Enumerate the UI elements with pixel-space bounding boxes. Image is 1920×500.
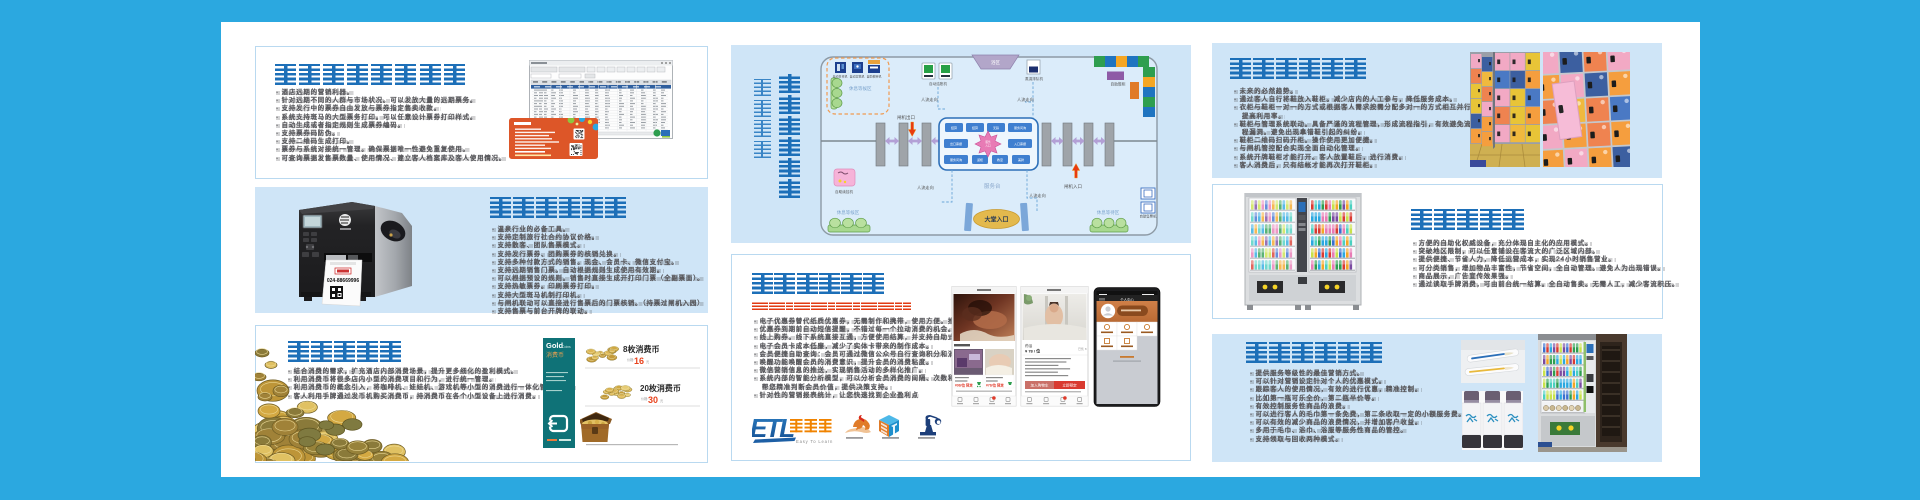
svg-text:闸机出口: 闸机出口	[897, 114, 915, 121]
svg-text:无踪: 无踪	[993, 125, 999, 130]
svg-text:浴区: 浴区	[991, 59, 1000, 66]
svg-text:美牌: 美牌	[1018, 157, 1024, 162]
svg-text:蒸滠排队机: 蒸滠排队机	[1025, 76, 1043, 81]
svg-text:入口: 入口	[985, 144, 991, 148]
svg-text:8枚消费币: 8枚消费币	[623, 344, 659, 354]
svg-text:大堂入口: 大堂入口	[984, 216, 1008, 224]
svg-text:已售 8: 已售 8	[1078, 346, 1087, 351]
svg-text:元: 元	[646, 360, 650, 364]
svg-text:立即预定: 立即预定	[1062, 383, 1077, 388]
svg-text:人流走向: 人流走向	[917, 184, 934, 191]
svg-text:024-88669996: 024-88669996	[327, 278, 359, 284]
svg-text:闸机入口: 闸机入口	[1064, 183, 1082, 190]
svg-text:¥98/位 预定: ¥98/位 预定	[955, 383, 973, 388]
svg-text:自动宣拣机: 自动宣拣机	[849, 74, 864, 79]
svg-text:Gold: Gold	[546, 341, 563, 350]
svg-text:入口票据: 入口票据	[1014, 141, 1026, 146]
svg-text:人流走向: 人流走向	[921, 96, 938, 103]
svg-text:自助榴带机: 自助榴带机	[866, 74, 881, 79]
svg-text:自助鞋柜: 自助鞋柜	[1110, 82, 1125, 87]
svg-text:人流走向: 人流走向	[1017, 96, 1034, 103]
svg-text:30: 30	[648, 395, 658, 405]
svg-text:结算: 结算	[951, 125, 957, 130]
svg-text:Coins: Coins	[562, 345, 571, 349]
svg-text:¥78/位 预定: ¥78/位 预定	[986, 383, 1004, 388]
svg-text:Easy To Learn: Easy To Learn	[796, 439, 833, 444]
svg-text:结算: 结算	[972, 125, 978, 130]
svg-text:休息等候区: 休息等候区	[849, 85, 872, 92]
svg-text:出口票据: 出口票据	[950, 141, 962, 146]
svg-text:服务台: 服务台	[984, 182, 1001, 190]
svg-text:教室: 教室	[997, 157, 1003, 162]
svg-text:消费币: 消费币	[546, 351, 564, 359]
svg-text:自助续挂机: 自助续挂机	[835, 189, 853, 194]
svg-text:人流走向: 人流走向	[1029, 192, 1046, 199]
svg-text:药浴: 药浴	[1025, 343, 1033, 348]
svg-text:加入购物车: 加入购物车	[1031, 383, 1049, 388]
svg-text:服务问询: 服务问询	[950, 157, 962, 162]
svg-text:返柜: 返柜	[977, 157, 983, 162]
svg-text:自助售票机: 自助售票机	[1140, 214, 1158, 219]
svg-text:¥ 78 / 位: ¥ 78 / 位	[1025, 348, 1040, 354]
svg-text:元: 元	[660, 399, 664, 403]
svg-text:休息等待区: 休息等待区	[1097, 209, 1120, 216]
svg-text:休息等候区: 休息等候区	[837, 209, 860, 216]
svg-text:16: 16	[634, 356, 644, 366]
svg-text:服务: 服务	[985, 140, 991, 144]
svg-text:自动结账机: 自动结账机	[929, 81, 947, 86]
svg-text:20枚消费币: 20枚消费币	[640, 383, 681, 393]
svg-text:服务问询: 服务问询	[1014, 125, 1026, 130]
